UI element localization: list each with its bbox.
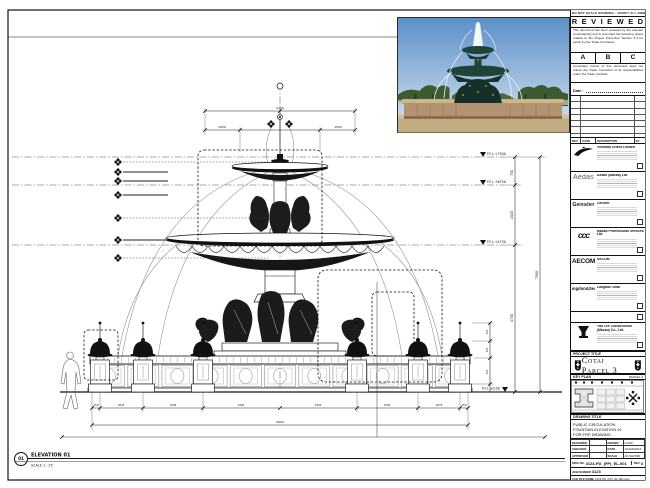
bottom-dimensions: 450 1075 1500 1925 1925 1500 1075 450 99… — [60, 392, 547, 439]
bdim-6: 1500 — [384, 403, 391, 407]
langdon-seah-logo: Langdon&Seah — [572, 286, 595, 291]
consultant-address — [597, 239, 637, 248]
date-fill-line[interactable] — [586, 89, 643, 93]
aecom-logo: AECOM — [572, 258, 595, 265]
project-emblem-right-icon — [634, 359, 642, 372]
cad-label: CAD FILE NAME — [571, 477, 595, 480]
title-block-column: DO NOT SCALE DRAWING · VERIFY ALL DIMENS… — [570, 10, 645, 480]
venetian-wing-icon — [573, 146, 594, 157]
description-col: DESCRIPTION — [596, 138, 634, 143]
consultant-checkbox[interactable] — [637, 303, 643, 309]
consultant-address — [597, 263, 637, 272]
aedas-logo: Aedas — [573, 174, 594, 181]
cad-file-row: CAD FILE NAME 3123-PD_(FP)_EL-001.dwg — [571, 476, 645, 480]
dwg-no-value: 3123-PD_(FP)_EL-001 — [586, 461, 631, 466]
by-col: BY — [635, 138, 645, 143]
job-number-row: JOB NUMBER 3123 — [571, 468, 645, 476]
scale-value: AS SHOWN — [624, 452, 645, 458]
consultant-langdon-seah: Langdon&Seah Langdon Seah — [571, 284, 645, 312]
stamp-paragraph-1: This document has been reviewed by the r… — [571, 28, 645, 52]
level-markers: F.F.L +7500 F.F.L +6750 F.F.L +4730 F.F.… — [472, 152, 545, 394]
job-label: JOB NUMBER — [571, 470, 592, 474]
consultant-name: Langdon Seah — [597, 286, 644, 290]
level-4730: F.F.L +4730 — [487, 240, 506, 244]
yau-lee-logo-icon — [577, 325, 590, 339]
reviewed-title: R E V I E W E D — [571, 17, 645, 28]
drawing-title-text: PUBLIC CIRCULATION FOUNTAIN ELEVATION 01… — [571, 420, 645, 439]
bdim-1: 450 — [94, 403, 99, 407]
consultant-name: Macau Professional Services Ltd. — [597, 230, 644, 238]
consultant-venetian: Venetian Orient Limited — [571, 144, 645, 172]
rev-col: REV — [571, 138, 581, 143]
project-title-row: Cotai Parcel 3 — [571, 357, 645, 374]
consultant-name: Venetian Orient Limited — [597, 146, 644, 150]
key-plan-label: KEY PLAN — [573, 375, 591, 379]
bdim-2: 1075 — [118, 403, 125, 407]
elevation-title: 01 ELEVATION 01 SCALE 1 : 25 — [15, 453, 566, 468]
elevation-label: ELEVATION 01 — [31, 453, 71, 459]
drawing-info-table: DESIGNED - DRAWN CHAD CHECKED - DATE 12/… — [571, 439, 645, 459]
project-title: Cotai Parcel 3 — [582, 357, 634, 374]
gensler-logo: Gensler — [572, 202, 594, 208]
consultant-address — [597, 207, 637, 216]
drawing-sheet: 2100 1050 1050 F.F.L +7500 F.F.L +6750 F… — [0, 0, 650, 488]
stamp-signature-table — [571, 96, 645, 138]
dim-top-seg-left: 1050 — [218, 125, 226, 129]
drawing-title-line3: FOR FRP DRAWING — [573, 432, 643, 437]
consultant-mps: ccc Macau Professional Services Ltd. — [571, 228, 645, 256]
mps-logo: ccc — [578, 230, 589, 240]
sheet-top-note: DO NOT SCALE DRAWING · VERIFY ALL DIMENS… — [571, 10, 645, 17]
dim-top-seg-right: 1050 — [334, 125, 342, 129]
level-0: F.F.L ±0.00 — [482, 387, 500, 391]
stamp-date-row: Date : — [571, 82, 645, 95]
consultant-checkbox[interactable] — [637, 191, 643, 197]
bdim-8: 450 — [462, 403, 467, 407]
rev-value: 0 — [641, 461, 645, 466]
consultant-address — [597, 179, 637, 188]
consultant-address — [597, 151, 637, 160]
dwg-no-label: DWG NO. — [571, 461, 586, 465]
bdim-7: 1075 — [436, 403, 443, 407]
stamp-paragraph-2: Consultant review of this document does … — [571, 63, 645, 82]
consultant-checkbox[interactable] — [637, 247, 643, 253]
scale-figure — [61, 352, 81, 409]
bdim-total: 9900 — [276, 420, 284, 424]
elevation-bubble: 01 — [18, 456, 24, 461]
contractor-name: Yau Lee Construction (Macau) Co., Ltd. — [597, 325, 644, 333]
vdim-2020: 2020 — [510, 211, 514, 219]
fountain-elevation — [166, 83, 394, 358]
dim-top-total: 2100 — [276, 106, 284, 110]
scale-label: SCALE — [607, 452, 624, 458]
project-emblem-left-icon — [574, 359, 582, 372]
approved-value: - — [590, 452, 606, 458]
vdim-750: 750 — [510, 170, 514, 176]
bdim-3: 1500 — [170, 403, 177, 407]
grade-b-box[interactable]: B — [596, 53, 621, 63]
elevation-drawing: 2100 1050 1050 F.F.L +7500 F.F.L +6750 F… — [0, 0, 650, 488]
consultant-address — [597, 291, 637, 300]
elevation-scale: SCALE 1 : 25 — [31, 464, 53, 468]
approved-label: APPROVED — [571, 452, 590, 458]
bdim-5: 1925 — [315, 403, 322, 407]
consultant-name: Gensler — [597, 202, 644, 206]
bdim-4: 1925 — [238, 403, 245, 407]
date-col: DATE — [581, 138, 596, 143]
consultant-aecom: AECOM AECOM — [571, 256, 645, 284]
contractor-box: Yau Lee Construction (Macau) Co., Ltd. — [571, 323, 645, 351]
vdim-7500: 7500 — [535, 271, 539, 279]
key-plan-note: PARCEL 3 — [629, 375, 643, 379]
grade-c-box[interactable]: C — [621, 53, 645, 63]
job-value: 3123 — [592, 469, 601, 474]
dwg-no-row: DWG NO. 3123-PD_(FP)_EL-001 REV 0 — [571, 459, 645, 468]
consultant-gensler: Gensler Gensler — [571, 200, 645, 228]
level-7500: F.F.L +7500 — [487, 152, 506, 156]
date-label: Date : — [573, 89, 584, 93]
contractor-checkbox[interactable] — [637, 342, 643, 348]
key-plan-map — [571, 380, 645, 414]
consultant-name: AECOM — [597, 258, 644, 262]
post-dim-2: 300 — [485, 347, 489, 352]
consultant-checkbox[interactable] — [637, 163, 643, 169]
post-dim-1: 450 — [485, 329, 489, 334]
stamp-grade-row: A B C — [571, 52, 645, 63]
rev-label: REV — [631, 461, 641, 465]
consultant-checkbox[interactable] — [637, 219, 643, 225]
consultant-checkbox[interactable] — [637, 275, 643, 281]
contractor-address — [597, 334, 637, 343]
spare-consultant-box — [571, 312, 645, 323]
key-plan-drawing — [571, 380, 644, 413]
vdim-4730: 4730 — [510, 314, 514, 322]
post-dim-3: 450 — [485, 369, 489, 374]
review-stamp: R E V I E W E D This document has been r… — [571, 17, 645, 96]
cad-value: 3123-PD_(FP)_EL-001.dwg — [595, 477, 630, 480]
level-6750: F.F.L +6750 — [487, 180, 506, 184]
spare-checkbox[interactable] — [637, 314, 643, 320]
consultant-aedas: Aedas Aedas (Macau) Ltd. — [571, 172, 645, 200]
consultant-name: Aedas (Macau) Ltd. — [597, 174, 644, 178]
fountain-photo — [398, 18, 570, 133]
grade-a-box[interactable]: A — [571, 53, 596, 63]
